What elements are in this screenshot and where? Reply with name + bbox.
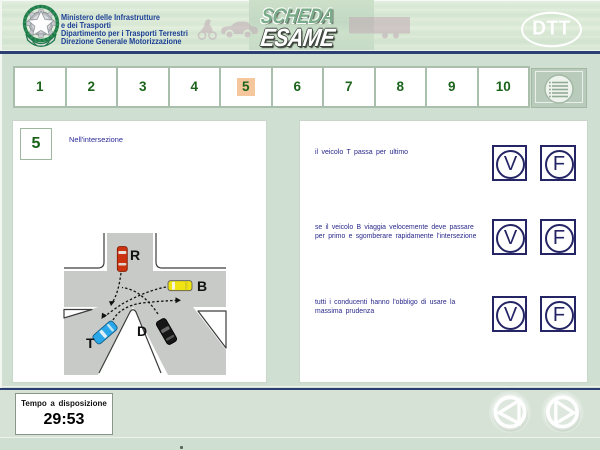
svg-text:B: B	[197, 278, 207, 294]
svg-text:R: R	[130, 247, 140, 263]
svg-text:D: D	[137, 323, 147, 339]
svg-text:T: T	[86, 335, 95, 351]
